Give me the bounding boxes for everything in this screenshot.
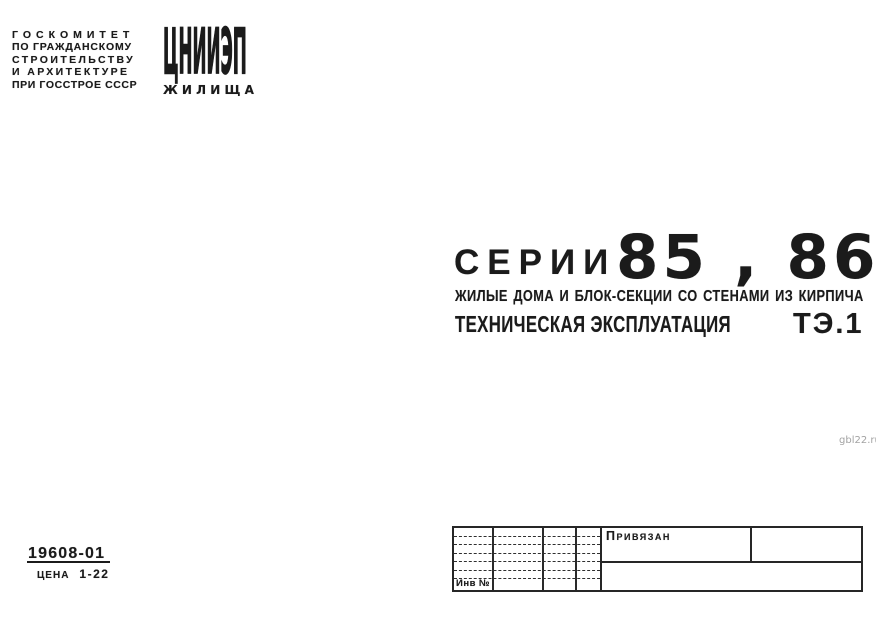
price-label: ЦЕНА: [37, 570, 69, 581]
stamp-grid-vline: [575, 528, 577, 590]
doc-type-title: ТЕХНИЧЕСКАЯ ЭКСПЛУАТАЦИЯ: [455, 311, 731, 338]
stamp-grid-hline: [454, 544, 600, 545]
series-subtitle: ЖИЛЫЕ ДОМА И БЛОК-СЕКЦИИ СО СТЕНАМИ ИЗ К…: [455, 288, 864, 306]
title-block-stamp: Привязан Инв №: [452, 526, 863, 592]
doc-code: ТЭ.1: [793, 308, 864, 341]
tsniiep-logo: ЦНИИЭП: [163, 22, 247, 84]
price-value: 1-22: [79, 567, 109, 581]
stamp-right-vline: [750, 528, 752, 561]
stamp-right-hline: [600, 561, 861, 563]
inventory-number-label: Инв №: [456, 578, 490, 589]
publisher-line: ПО ГРАЖДАНСКОМУ: [12, 41, 137, 53]
publisher-line: ПРИ ГОССТРОЕ СССР: [12, 79, 137, 91]
logo-word: ЖИЛИЩА: [163, 83, 258, 97]
series-numbers: 85 , 86: [616, 222, 876, 293]
scanned-title-page: ГОСКОМИТЕТ ПО ГРАЖДАНСКОМУ СТРОИТЕЛЬСТВУ…: [0, 0, 876, 629]
series-label: СЕРИИ: [454, 243, 616, 283]
stamp-grid-divider: [600, 528, 602, 590]
stamp-grid-vline: [492, 528, 494, 590]
stamp-grid-hline: [454, 553, 600, 554]
stamp-grid-hline: [454, 536, 600, 537]
publisher-line: И АРХИТЕКТУРЕ: [12, 66, 137, 78]
price-line: ЦЕНА1-22: [37, 565, 109, 583]
stamp-grid-hline: [454, 561, 600, 562]
publisher-line: ГОСКОМИТЕТ: [12, 29, 137, 41]
underline-rule: [27, 561, 110, 563]
stamp-note: Привязан: [606, 529, 671, 543]
watermark: gbl22.ru: [839, 435, 876, 446]
publisher-line: СТРОИТЕЛЬСТВУ: [12, 54, 137, 66]
publisher-block: ГОСКОМИТЕТ ПО ГРАЖДАНСКОМУ СТРОИТЕЛЬСТВУ…: [12, 29, 137, 91]
stamp-grid-hline: [454, 570, 600, 571]
stamp-grid-vline: [542, 528, 544, 590]
